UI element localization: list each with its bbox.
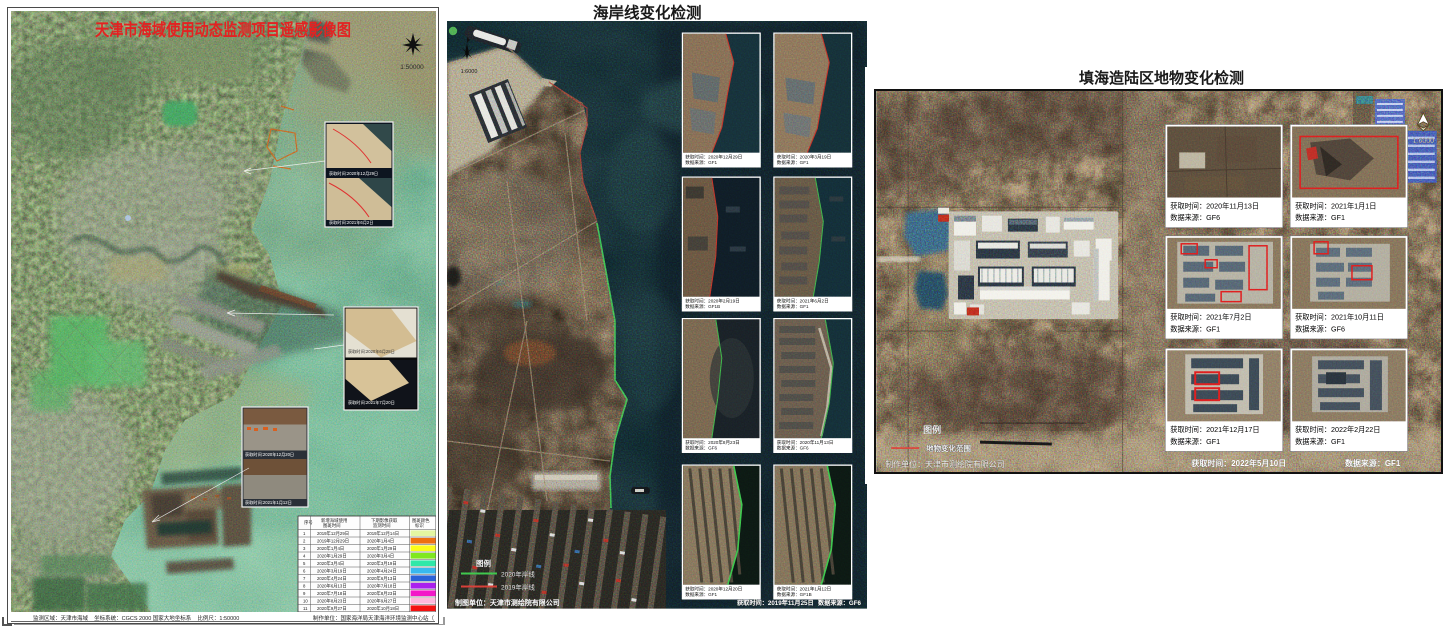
svg-text:2019年12月14日: 2019年12月14日	[367, 530, 399, 537]
svg-text:2020年3月4日: 2020年3月4日	[367, 553, 394, 560]
svg-text:2020年1月4日: 2020年1月4日	[317, 545, 344, 552]
svg-text:2020年9月27日: 2020年9月27日	[367, 598, 397, 605]
svg-text:获取时间:2020年6月28日: 获取时间:2020年6月28日	[348, 348, 395, 355]
svg-text:2020年10月18日: 2020年10月18日	[367, 605, 399, 612]
svg-text:2020年8月23日: 2020年8月23日	[367, 590, 397, 597]
svg-text:2020年4月24日: 2020年4月24日	[367, 568, 397, 575]
svg-text:天津市海域使用动态监测项目遥感影像图: 天津市海域使用动态监测项目遥感影像图	[95, 20, 351, 40]
svg-text:2019年12月29日: 2019年12月29日	[317, 530, 349, 537]
svg-text:11: 11	[303, 606, 308, 611]
svg-text:2020年1月4日: 2020年1月4日	[367, 538, 394, 545]
svg-text:获取时间:2021年7月20日: 获取时间:2021年7月20日	[348, 399, 395, 406]
svg-text:获取时间:2021年1月12日: 获取时间:2021年1月12日	[245, 499, 292, 506]
svg-text:2020年8月23日: 2020年8月23日	[317, 598, 347, 605]
svg-text:2020年1月29日: 2020年1月29日	[367, 545, 397, 552]
svg-text:2020年3月19日: 2020年3月19日	[367, 560, 397, 567]
svg-text:10: 10	[303, 599, 308, 604]
svg-text:序号: 序号	[304, 519, 313, 526]
svg-text:获取时间:2020年12月20日: 获取时间:2020年12月20日	[245, 451, 294, 458]
svg-text:2020年6月13日: 2020年6月13日	[317, 583, 347, 590]
svg-text:监测时间: 监测时间	[373, 522, 391, 529]
svg-text:2020年3月4日: 2020年3月4日	[317, 560, 344, 567]
svg-text:标识: 标识	[415, 522, 424, 529]
svg-text:2020年3月19日: 2020年3月19日	[317, 568, 347, 575]
svg-text:2020年6月13日: 2020年6月13日	[367, 575, 397, 582]
svg-text:2020年9月27日: 2020年9月27日	[317, 605, 347, 612]
svg-text:2019年12月29日: 2019年12月29日	[317, 538, 349, 545]
svg-text:获取时间:2020年12月29日: 获取时间:2020年12月29日	[329, 170, 378, 177]
svg-text:1:50000: 1:50000	[400, 64, 424, 71]
svg-text:获取时间:2021年6月2日: 获取时间:2021年6月2日	[329, 219, 373, 226]
svg-text:2020年7月18日: 2020年7月18日	[367, 583, 397, 590]
svg-text:2020年1月29日: 2020年1月29日	[317, 553, 347, 560]
svg-text:图斑时间: 图斑时间	[323, 522, 341, 529]
svg-text:2020年7月18日: 2020年7月18日	[317, 590, 347, 597]
svg-text:2020年4月24日: 2020年4月24日	[317, 575, 347, 582]
